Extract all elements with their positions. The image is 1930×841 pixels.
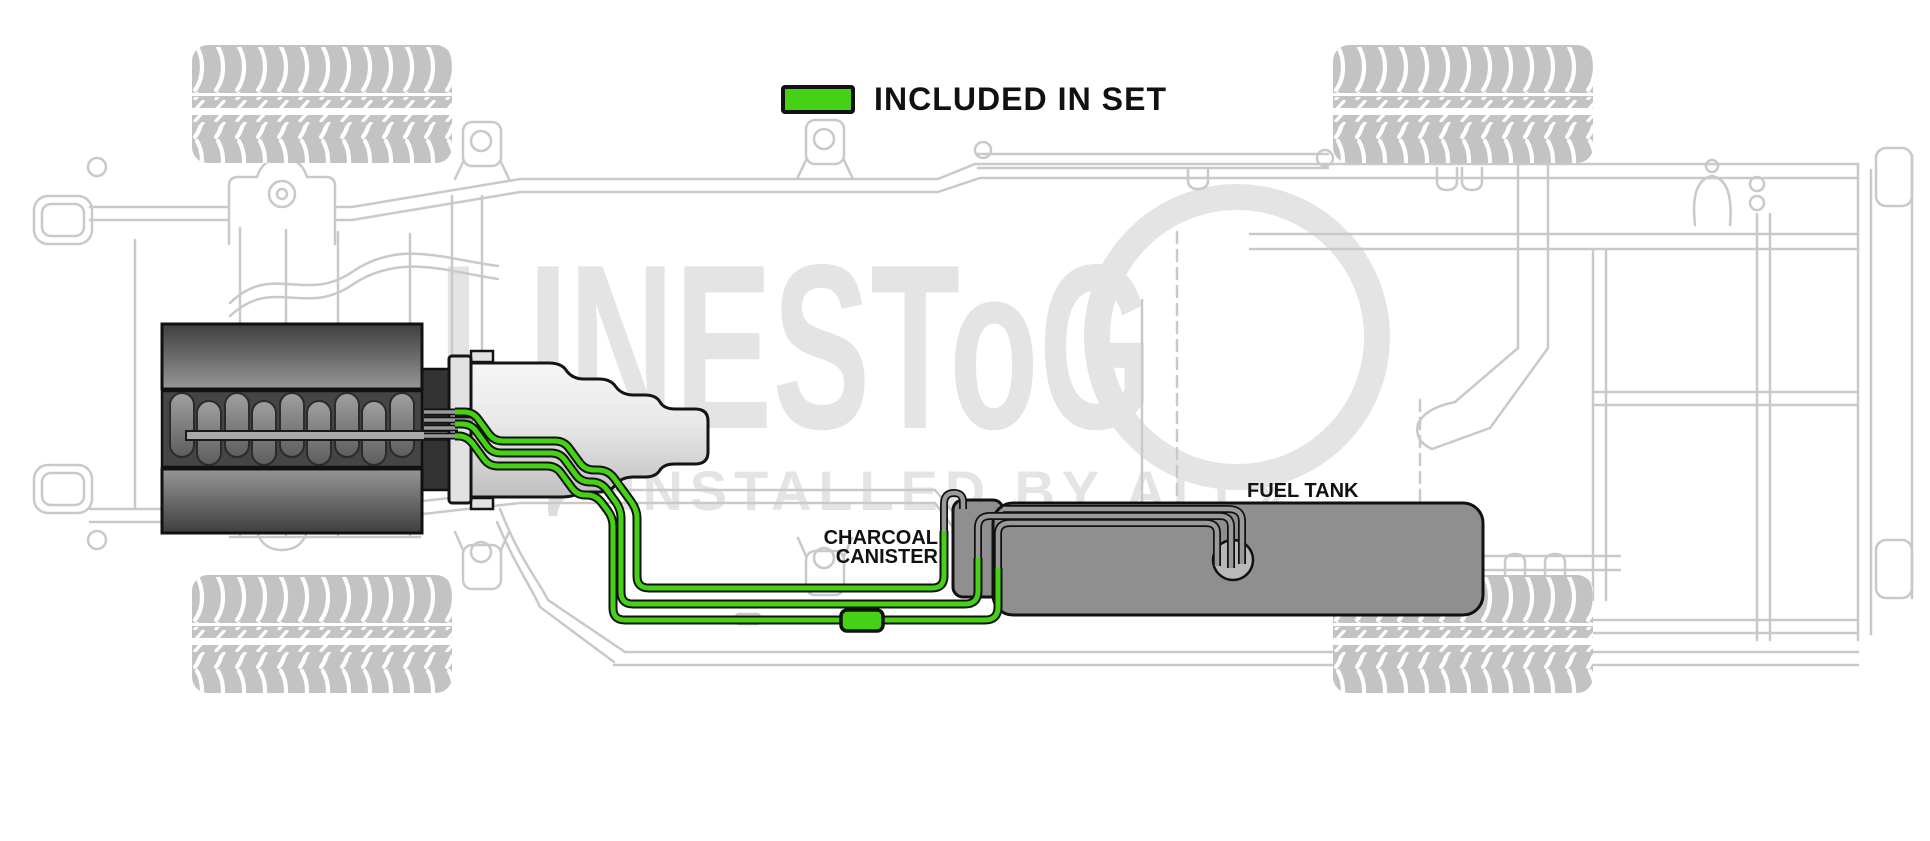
cab-bracket-bottom-1 <box>455 532 509 589</box>
fuel-tank-label: FUEL TANK <box>1247 480 1359 502</box>
diagram-canvas: LINESToG INSTALLED BY ALL » <box>0 0 1930 841</box>
engine-bank-top <box>162 324 422 389</box>
legend-swatch <box>783 87 853 112</box>
charcoal-canister-label-line2: CANISTER <box>836 546 939 568</box>
legend-label: INCLUDED IN SET <box>874 81 1166 117</box>
tire-rear-left-top <box>1333 45 1593 163</box>
engine-fuel-rail <box>186 431 449 440</box>
transmission-tab-top <box>471 351 493 362</box>
legend: INCLUDED IN SET <box>783 81 1166 117</box>
tire-front-right-bottom <box>192 575 452 693</box>
engine-intake-runners <box>170 393 414 465</box>
engine-bank-bottom <box>162 469 422 533</box>
rear-axle <box>1417 163 1548 449</box>
cab-bracket-top-1 <box>455 122 509 179</box>
transmission-tab-bottom <box>471 498 493 509</box>
front-frame-horn-bottom <box>34 465 106 549</box>
engine <box>162 324 451 533</box>
tire-front-left <box>192 45 452 163</box>
cab-bracket-top-2 <box>798 120 852 177</box>
front-frame-horn-top <box>34 158 106 244</box>
inline-connector <box>841 610 883 631</box>
